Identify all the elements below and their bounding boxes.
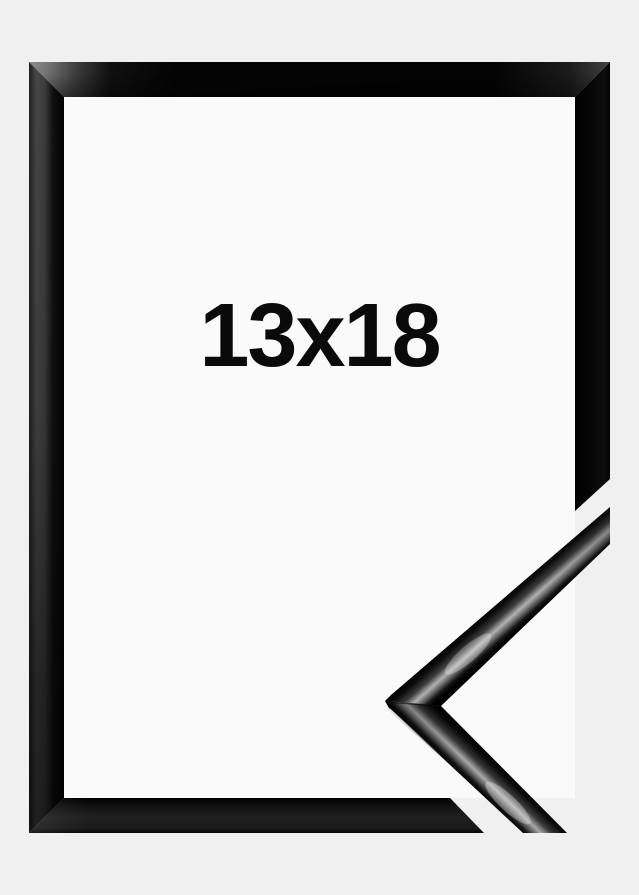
frame-interior [64, 97, 575, 798]
product-photo: 13x18 [0, 0, 639, 895]
frame-left-rail [29, 62, 64, 833]
frame-right-rail [575, 62, 610, 511]
frame-photo-canvas [0, 0, 639, 895]
frame-bottom-rail [29, 798, 484, 833]
frame-top-rail [29, 62, 610, 97]
size-label: 13x18 [0, 291, 639, 381]
